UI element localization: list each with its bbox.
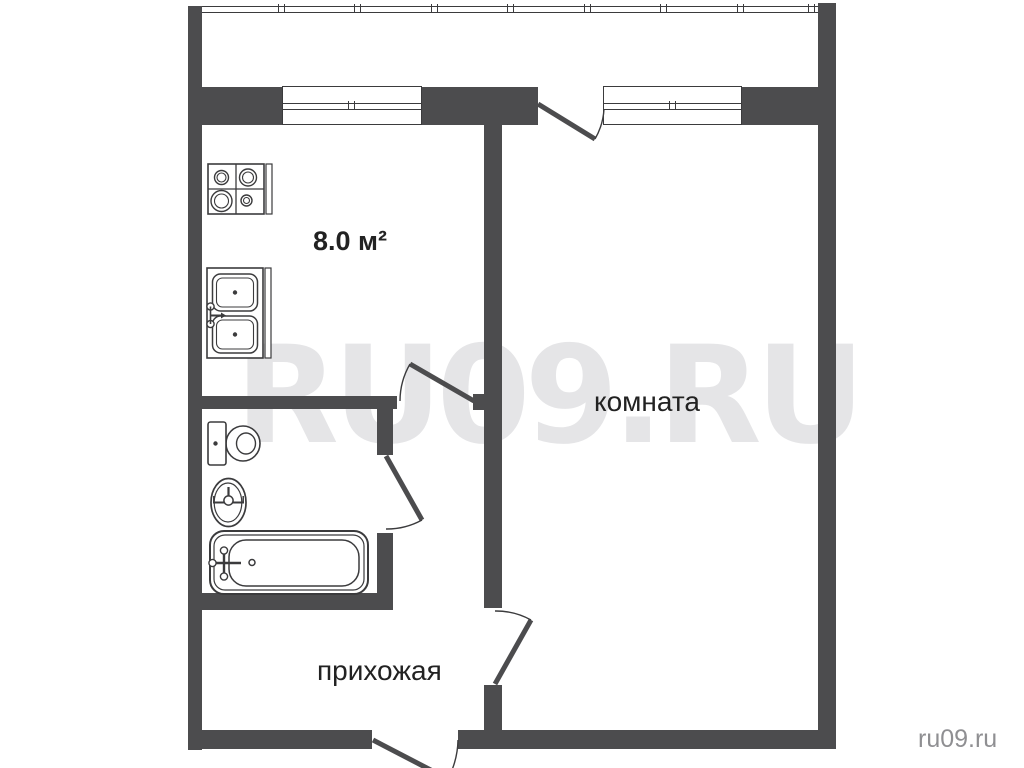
room-label: комната	[594, 386, 700, 418]
kitchen-sink-icon	[207, 268, 271, 358]
balcony-door	[538, 104, 604, 139]
entrance-door	[373, 740, 458, 768]
toilet-icon	[208, 422, 260, 465]
stove-icon	[208, 164, 272, 214]
hallway-label: прихожая	[317, 655, 439, 687]
site-watermark: ru09.ru	[918, 725, 997, 754]
floor-plan: RU09.RU	[0, 0, 1024, 768]
bathroom-door	[386, 456, 422, 529]
plan-linework	[0, 0, 1024, 768]
room-door	[495, 611, 531, 684]
washbasin-icon	[211, 479, 246, 527]
bathtub-icon	[209, 531, 368, 594]
kitchen-door	[400, 364, 474, 401]
kitchen-area-label: 8.0 м²	[310, 226, 390, 257]
